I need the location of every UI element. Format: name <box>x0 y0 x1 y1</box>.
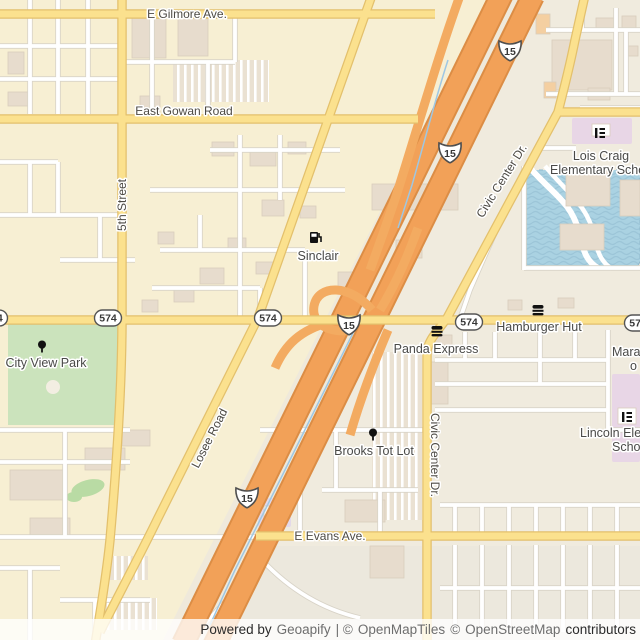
label-gowan: East Gowan Road <box>135 104 232 118</box>
svg-text:574: 574 <box>460 317 478 329</box>
label-sinclair: Sinclair <box>298 249 339 263</box>
svg-text:15: 15 <box>444 148 456 160</box>
svg-text:574: 574 <box>0 313 3 325</box>
attribution-contributors: contributors <box>565 622 636 637</box>
openmaptiles-link[interactable]: OpenMapTiles <box>358 622 445 637</box>
route-574-shield: 574 <box>95 310 122 326</box>
label-maravilla-2: o <box>630 359 637 373</box>
label-evans: E Evans Ave. <box>294 529 365 543</box>
svg-text:15: 15 <box>504 46 516 58</box>
attribution-separator: | © <box>336 622 353 637</box>
burger-icon <box>432 326 443 336</box>
label-hamburger-hut: Hamburger Hut <box>496 320 582 334</box>
label-lois-craig-2: Elementary Scho <box>550 163 640 177</box>
burger-icon <box>533 305 544 315</box>
map-canvas[interactable]: E Gilmore Ave. East Gowan Road 5th Stree… <box>0 0 640 640</box>
label-brooks-tot-lot: Brooks Tot Lot <box>334 444 414 458</box>
geoapify-link[interactable]: Geoapify <box>277 622 331 637</box>
svg-text:15: 15 <box>343 320 355 332</box>
svg-text:574: 574 <box>629 318 640 330</box>
route-574-shield: 574 <box>255 310 282 326</box>
label-civic-lower: Civic Center Dr. <box>428 413 442 497</box>
svg-text:574: 574 <box>99 313 117 325</box>
school-icon <box>595 128 605 138</box>
label-lincoln-1: Lincoln Ele <box>580 426 640 440</box>
label-fifth-street: 5th Street <box>115 178 129 231</box>
svg-text:15: 15 <box>241 493 253 505</box>
route-574-shield: 574 <box>456 314 483 330</box>
attribution-bar: Powered by Geoapify | © OpenMapTiles © O… <box>0 619 640 640</box>
label-panda-express: Panda Express <box>394 342 479 356</box>
school-icon <box>622 412 632 422</box>
attribution-copyright: © <box>450 622 460 637</box>
label-city-view-park: City View Park <box>5 356 87 370</box>
label-gilmore: E Gilmore Ave. <box>147 7 227 21</box>
route-574-shield: 574 <box>625 315 640 331</box>
label-lincoln-2: Schoo <box>612 440 640 454</box>
svg-text:574: 574 <box>259 313 277 325</box>
label-lois-craig-1: Lois Craig <box>573 149 629 163</box>
openstreetmap-link[interactable]: OpenStreetMap <box>465 622 560 637</box>
attribution-powered-by: Powered by <box>200 622 271 637</box>
label-maravilla-1: Mara <box>612 345 640 359</box>
